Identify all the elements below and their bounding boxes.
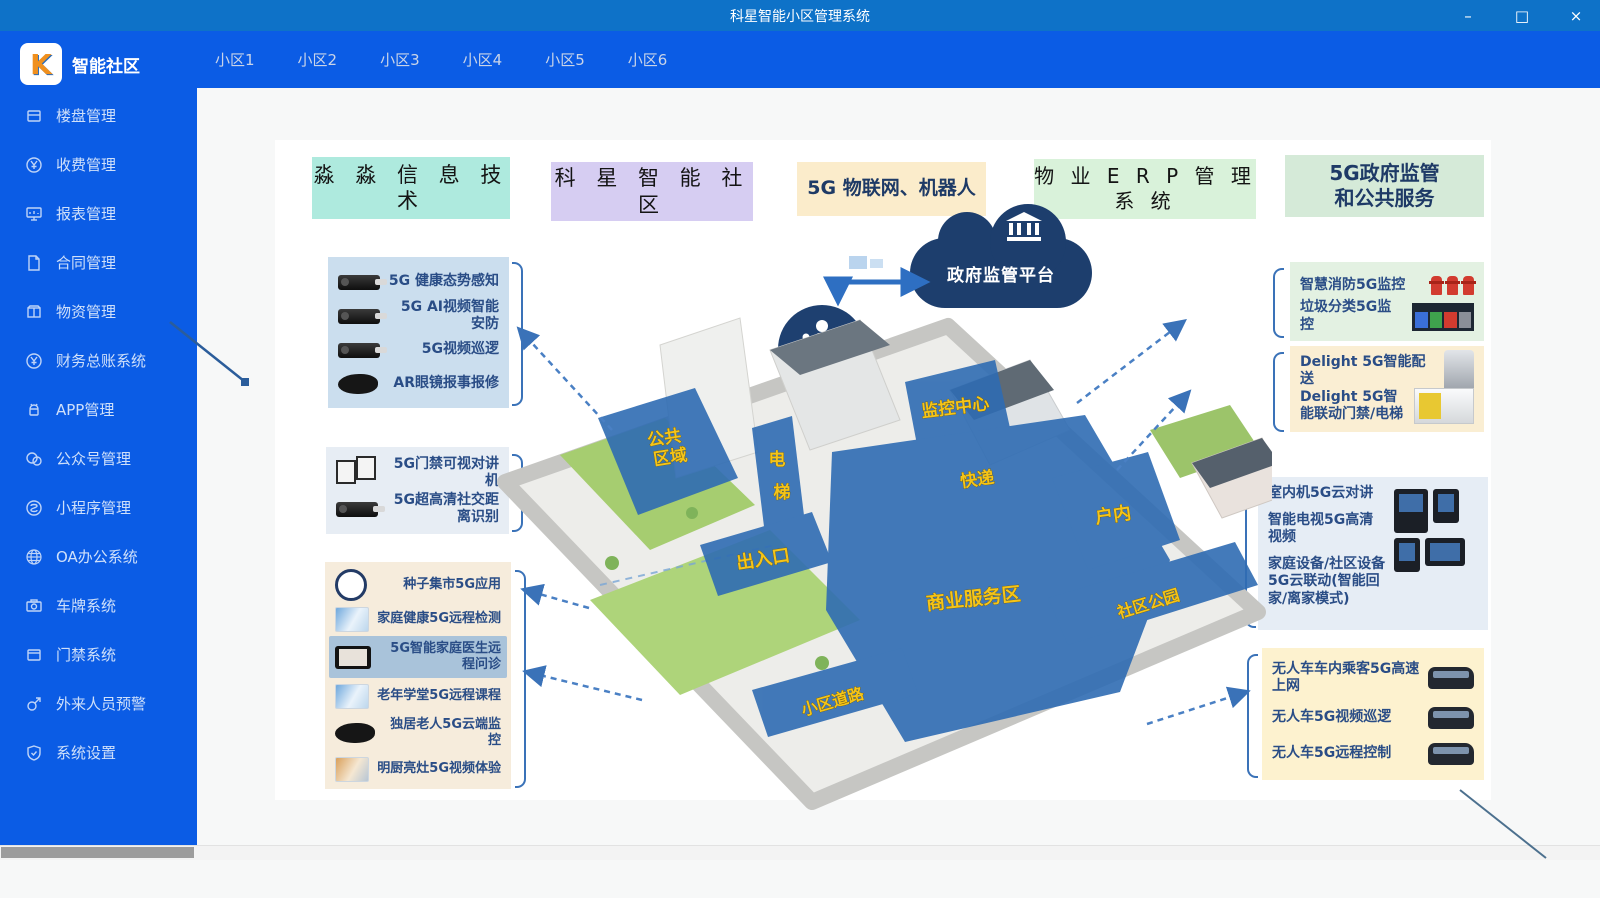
header-5g-iot: 5G 物联网、机器人 [797,162,986,216]
camera-image [336,502,378,517]
callout-fire-trash: 智慧消防5G监控 垃圾分类5G监控 [1290,262,1484,341]
sidebar-item-label: APP管理 [56,399,114,420]
community-tabbar: 小区1 小区2 小区3 小区4 小区5 小区6 [197,31,1600,88]
sidebar-item-label: 小程序管理 [56,497,131,518]
wechat-icon [25,450,43,468]
header-smart-community-text: 科 星 智 能 社 区 [551,165,753,218]
header-smart-community: 科 星 智 能 社 区 [551,162,753,221]
community-people-icon [798,317,846,361]
callout-5g-access: 5G门禁可视对讲机 5G超高清社交距离识别 [326,447,509,534]
settings-shield-icon [25,744,43,762]
visitor-male-icon [25,695,43,713]
header-erp: 物 业 E R P 管 理 系 统 [1034,159,1256,219]
sidebar-item-contract-mgmt[interactable]: 合同管理 [0,238,197,287]
window-controls: – □ × [1454,0,1590,31]
header-gov-line1: 5G政府监管 [1329,161,1439,186]
header-gov: 5G政府监管 和公共服务 [1285,155,1484,217]
app-android-icon [25,401,43,419]
intercom-devices-image [1394,485,1478,608]
sidebar-item-label: 财务总账系统 [56,350,146,371]
sidebar-item-fee-mgmt[interactable]: 收费管理 [0,140,197,189]
screenshot-image [335,684,369,709]
contract-icon [25,254,43,272]
miniprogram-icon [25,499,43,517]
close-icon[interactable]: × [1562,7,1590,25]
title-bar: 科星智能小区管理系统 – □ × [0,0,1600,31]
fee-yen-icon [25,156,43,174]
sidebar: K 智能社区 楼盘管理 收费管理 报表管理 合同管理 物资管理 财务总账系统 [0,31,197,845]
header-erp-line1: 物 业 E R P 管 理 [1034,164,1256,189]
bracket [1245,484,1256,628]
sidebar-item-miniprogram[interactable]: 小程序管理 [0,483,197,532]
sidebar-item-label: 合同管理 [56,252,116,273]
shuttle-image [1428,707,1474,729]
bracket [1247,654,1258,778]
sidebar-item-oa-system[interactable]: OA办公系统 [0,532,197,581]
sidebar-item-building-mgmt[interactable]: 楼盘管理 [0,91,197,140]
sidebar-item-label: 楼盘管理 [56,105,116,126]
callout-line: 垃圾分类5G监控 [1300,299,1404,334]
main-content: 淼 淼 信 息 技 术 科 星 智 能 社 区 5G 物联网、机器人 物 业 E… [197,88,1600,845]
callout-line: 家庭设备/社区设备5G云联动(智能回家/离家模式) [1268,556,1386,609]
door-icon [25,646,43,664]
callout-line: 明厨亮灶5G视频体验 [377,761,501,777]
arrow-down-triangle [804,396,842,418]
horizontal-scrollbar [0,845,1600,860]
turnstile-image [336,460,376,486]
callout-line: 5G AI视频智能安防 [388,299,499,334]
community-brain-label: 社区大脑 [796,368,848,387]
tab-community-4[interactable]: 小区4 [463,49,503,70]
gov-platform-label: 政府监管平台 [947,261,1055,286]
bracket [512,262,523,406]
callout-delivery-robot: Delight 5G智能配送 Delight 5G智能联动门禁/电梯 [1290,346,1484,432]
maximize-icon[interactable]: □ [1508,7,1536,25]
plate-camera-icon [25,597,43,615]
header-company: 淼 淼 信 息 技 术 [312,157,510,219]
callout-line: AR眼镜报事报修 [386,375,499,393]
ar-glasses-image [335,723,375,743]
callout-line: Delight 5G智能配送 [1300,354,1436,389]
camera-image [338,275,380,290]
sidebar-item-visitor-alert[interactable]: 外来人员预警 [0,679,197,728]
callout-line: 智能电视5G高清视频 [1268,512,1386,547]
header-5g-iot-text: 5G 物联网、机器人 [807,177,975,201]
ar-glasses-image [338,374,378,394]
report-icon [25,205,43,223]
tab-community-1[interactable]: 小区1 [215,49,255,70]
sidebar-item-label: 公众号管理 [56,448,131,469]
sidebar-item-settings[interactable]: 系统设置 [0,728,197,777]
sidebar-item-label: 车牌系统 [56,595,116,616]
window-title: 科星智能小区管理系统 [730,6,870,26]
bracket [515,570,526,788]
header-erp-line2: 系 统 [1114,189,1175,214]
screenshot-image [335,607,369,632]
camera-image [338,309,380,324]
fire-hydrant-image [1431,276,1474,295]
logo-k-icon: K [20,43,62,85]
tab-community-3[interactable]: 小区3 [380,49,420,70]
sidebar-item-app-mgmt[interactable]: APP管理 [0,385,197,434]
tablet-image [335,646,371,669]
oa-globe-icon [25,548,43,566]
building-icon [25,107,43,125]
callout-line: 无人车车内乘客5G高速上网 [1272,661,1420,696]
tab-community-6[interactable]: 小区6 [628,49,668,70]
sidebar-item-materials-mgmt[interactable]: 物资管理 [0,287,197,336]
header-gov-line2: 和公共服务 [1335,186,1435,211]
shuttle-image [1428,667,1474,689]
callout-line: Delight 5G智能联动门禁/电梯 [1300,389,1406,424]
sidebar-item-report-mgmt[interactable]: 报表管理 [0,189,197,238]
sidebar-item-ledger[interactable]: 财务总账系统 [0,336,197,385]
callout-5g-security: 5G 健康态势感知 5G AI视频智能安防 5G视频巡逻 AR眼镜报事报修 [328,257,509,408]
community-brain-node: 社区大脑 [778,305,866,393]
trash-bins-image [1412,303,1474,331]
minimize-icon[interactable]: – [1454,7,1482,25]
callout-line: 种子集市5G应用 [375,577,501,593]
callout-line: 无人车5G远程控制 [1272,745,1420,763]
shuttle-image [1428,743,1474,765]
callout-line: 5G 健康态势感知 [388,273,499,291]
callout-line: 老年学堂5G远程课程 [377,688,501,704]
horizontal-scrollbar-thumb[interactable] [1,847,194,858]
bracket [1273,352,1284,432]
callout-line: 室内机5G云对讲 [1268,485,1386,503]
gate-machine-image [1414,388,1474,424]
sidebar-item-label: 报表管理 [56,203,116,224]
callout-line: 5G视频巡逻 [388,341,499,359]
sidebar-item-label: OA办公系统 [56,546,138,567]
storefront-image [335,757,369,782]
brand-name: 智能社区 [72,52,140,77]
camera-image [338,343,380,358]
callout-line: 无人车5G视频巡逻 [1272,709,1420,727]
sidebar-item-label: 外来人员预警 [56,693,146,714]
round-badge-image [335,569,367,601]
sidebar-item-label: 物资管理 [56,301,116,322]
callout-autonomous-vehicles: 无人车车内乘客5G高速上网 无人车5G视频巡逻 无人车5G远程控制 [1262,648,1484,780]
bracket [1273,268,1284,338]
callout-line: 智慧消防5G监控 [1300,277,1423,295]
sidebar-item-label: 收费管理 [56,154,116,175]
callout-5g-home-services: 种子集市5G应用 家庭健康5G远程检测 5G智能家庭医生远程问诊 老年学堂5G远… [325,562,511,789]
sidebar-item-plate-system[interactable]: 车牌系统 [0,581,197,630]
government-building-icon [1004,212,1044,242]
brand: K 智能社区 [0,31,197,91]
delivery-robot-image [1444,350,1474,392]
tab-community-5[interactable]: 小区5 [545,49,585,70]
sidebar-item-access-control[interactable]: 门禁系统 [0,630,197,679]
callout-indoor-devices: 室内机5G云对讲 智能电视5G高清视频 家庭设备/社区设备5G云联动(智能回家/… [1258,477,1488,630]
callout-line: 独居老人5G云端监控 [383,717,501,750]
materials-icon [25,303,43,321]
ledger-yen-icon [25,352,43,370]
callout-line: 家庭健康5G远程检测 [377,611,501,627]
sidebar-menu: 楼盘管理 收费管理 报表管理 合同管理 物资管理 财务总账系统 APP管理 公 [0,91,197,777]
callout-line: 5G门禁可视对讲机 [384,456,499,491]
callout-line-highlighted: 5G智能家庭医生远程问诊 [379,641,501,674]
sidebar-item-label: 门禁系统 [56,644,116,665]
gov-platform-cloud: 政府监管平台 [910,238,1092,308]
sidebar-item-wechat-official[interactable]: 公众号管理 [0,434,197,483]
tab-community-2[interactable]: 小区2 [298,49,338,70]
sidebar-item-label: 系统设置 [56,742,116,763]
bracket [512,454,523,532]
header-company-text: 淼 淼 信 息 技 术 [312,162,510,215]
callout-line: 5G超高清社交距离识别 [386,492,499,527]
